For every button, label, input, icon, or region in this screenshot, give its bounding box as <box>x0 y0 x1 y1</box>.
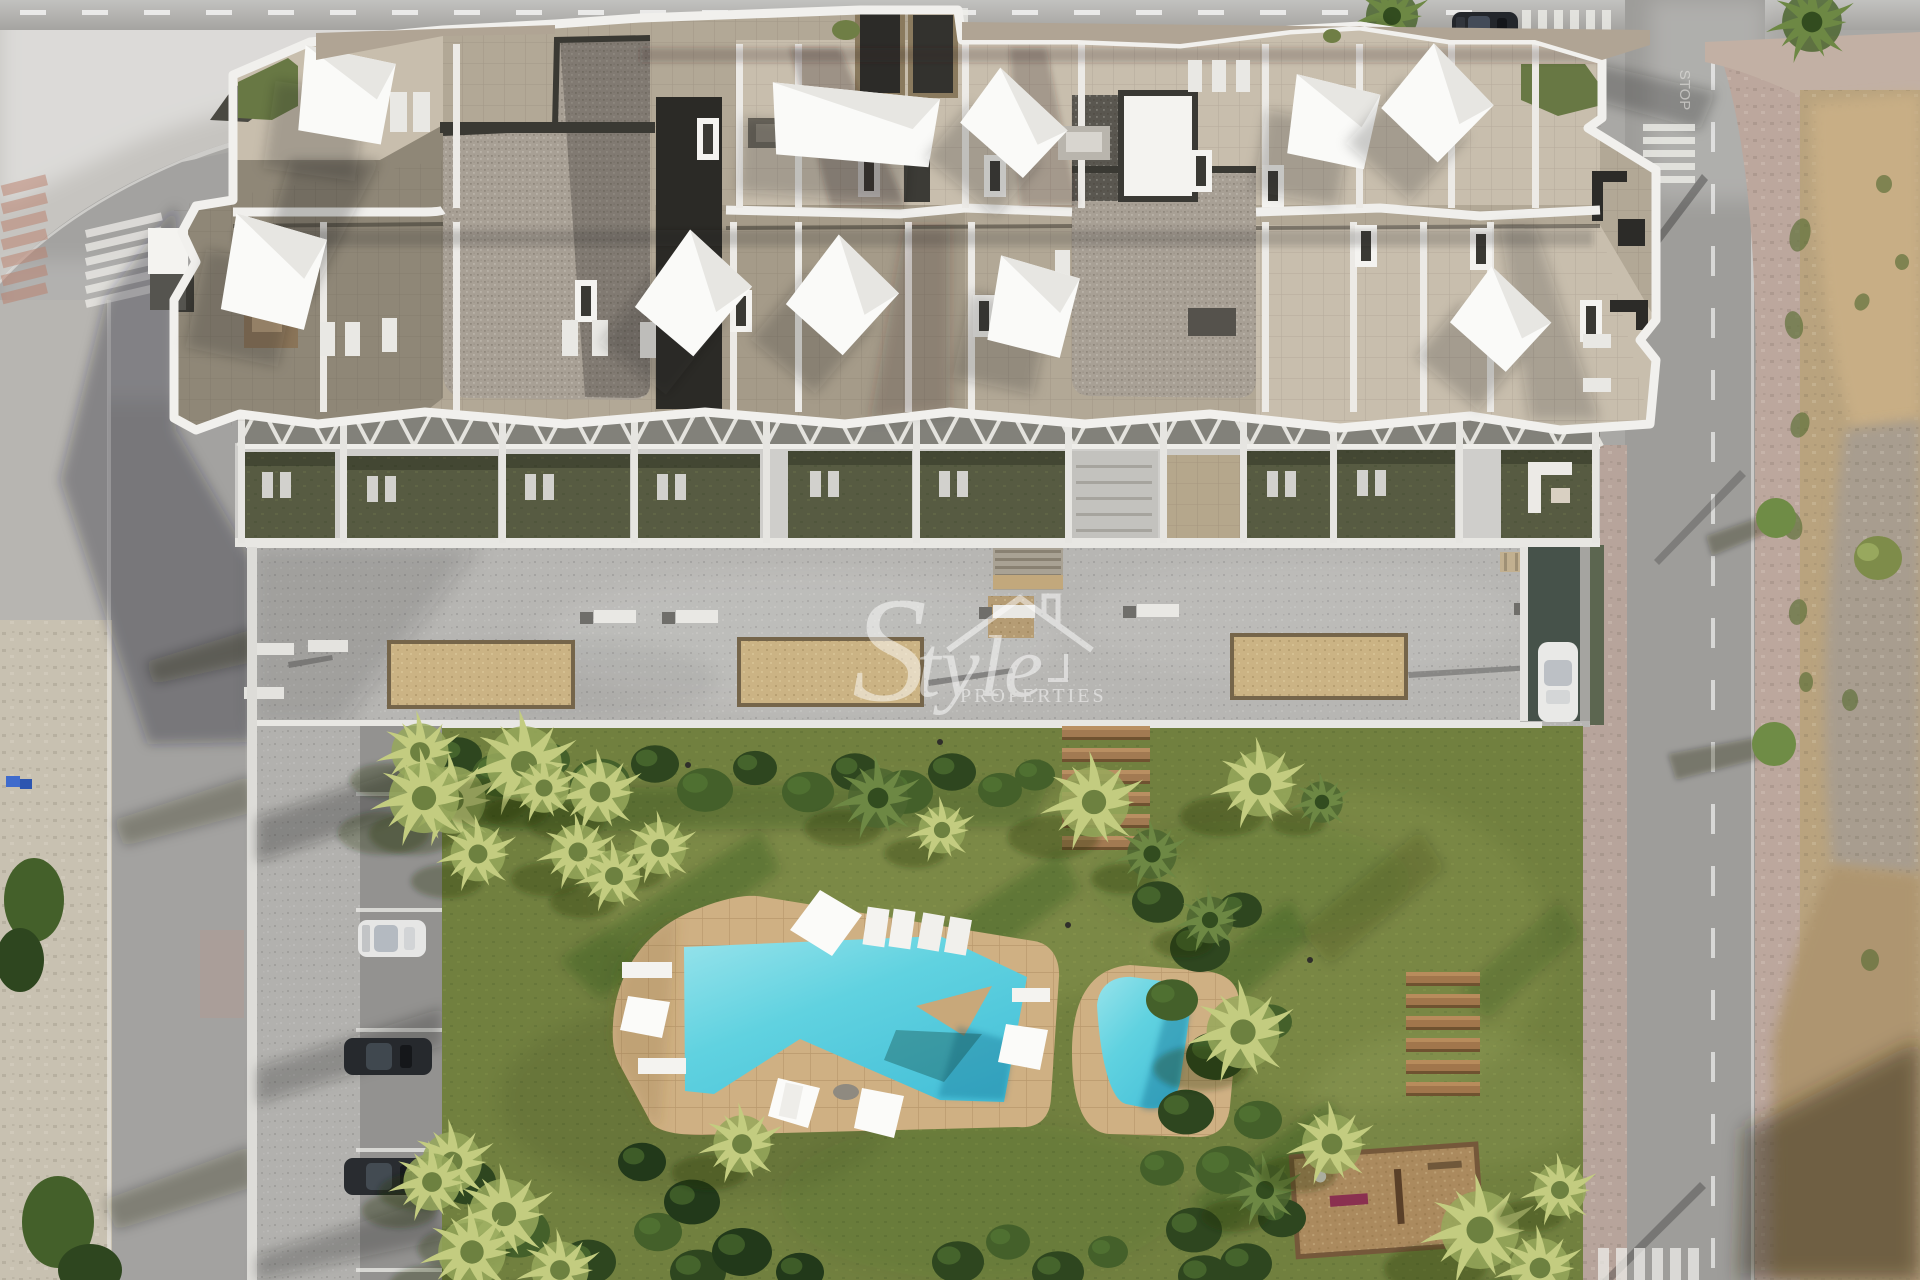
svg-text:STOP: STOP <box>1676 70 1693 111</box>
svg-text:PROPERTIES: PROPERTIES <box>960 685 1107 707</box>
